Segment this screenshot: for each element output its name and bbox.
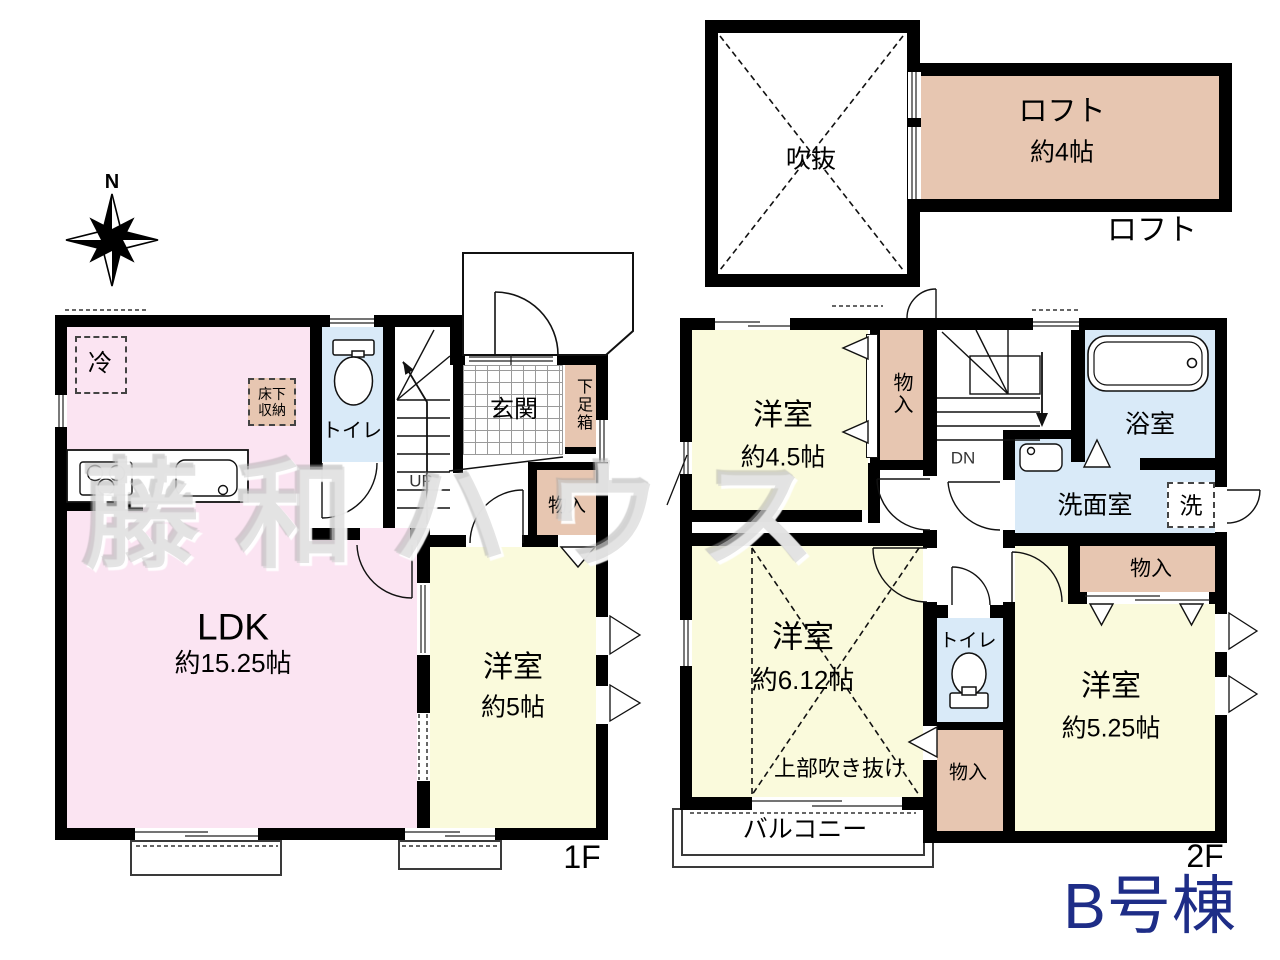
compass-north-label: N bbox=[105, 172, 119, 192]
ldk-label: LDK bbox=[197, 609, 269, 646]
bedroom-1f-fill bbox=[430, 547, 596, 828]
bedroom-2fa-label: 洋室 bbox=[753, 401, 813, 431]
bath-fill bbox=[1083, 330, 1215, 458]
compass-rose bbox=[66, 194, 158, 286]
stairs-down-label: DN bbox=[951, 450, 976, 467]
loft-caption: ロフト bbox=[1107, 216, 1197, 246]
shoe-box-label: 下足箱 bbox=[574, 378, 590, 432]
building-name-label: B号棟 bbox=[1063, 874, 1237, 938]
door-gap-bedroom2fb bbox=[923, 548, 937, 602]
closet-2f-top-doors bbox=[866, 334, 878, 458]
door-gap-washroom bbox=[1003, 480, 1015, 530]
underfloor-label-2: 収納 bbox=[258, 403, 286, 417]
window-bedroom2fc-east-a bbox=[1215, 614, 1227, 652]
window-bedroom2fa-west bbox=[680, 442, 692, 474]
wall bbox=[1209, 592, 1215, 604]
window-bedroom2fb-west bbox=[680, 620, 692, 666]
loft-room-label: ロフト bbox=[1018, 98, 1105, 127]
terrace-step-bedroom bbox=[398, 840, 502, 870]
closet-2f-mid-label: 物入 bbox=[949, 764, 987, 783]
door-swing-washroom bbox=[948, 482, 1000, 530]
window-bedroom1f-east-b bbox=[596, 686, 608, 724]
door-swing-washroom-east bbox=[1227, 490, 1260, 523]
terrace-step-ldk bbox=[130, 840, 282, 876]
void-room-label: 吹抜 bbox=[786, 148, 836, 173]
door-gap-bedroom2fa bbox=[923, 476, 937, 530]
loft-room-box bbox=[908, 63, 1232, 212]
door-gap-bedroom1f bbox=[466, 535, 522, 547]
bedroom-1f-label: 洋室 bbox=[483, 653, 543, 683]
floor1-caption: 1F bbox=[563, 841, 600, 873]
wall bbox=[1015, 533, 1215, 546]
loft-size-label: 約4帖 bbox=[1030, 141, 1094, 166]
kitchen-counter-base bbox=[67, 502, 143, 511]
closet-2f-mid-opening bbox=[923, 726, 937, 760]
door-swing-toilet-2f bbox=[952, 567, 990, 605]
loft-window-upper bbox=[908, 72, 921, 118]
wall bbox=[528, 462, 597, 470]
bedroom-2fa-size-label: 約4.5帖 bbox=[741, 446, 826, 471]
door-gap-toilet2f bbox=[948, 605, 990, 618]
window-entry-east bbox=[596, 420, 608, 462]
slider-ldk-bedroom bbox=[417, 583, 430, 655]
bedroom-2fb-size-label: 約6.12帖 bbox=[752, 667, 855, 693]
wall bbox=[453, 363, 463, 473]
bedroom-2fc-label: 洋室 bbox=[1081, 672, 1141, 702]
loft-window-lower bbox=[908, 127, 921, 199]
wall bbox=[565, 447, 597, 454]
window-ldk-west bbox=[55, 395, 67, 427]
washer-label: 洗 bbox=[1180, 495, 1203, 518]
closet-1f-opening bbox=[558, 535, 596, 547]
toilet-2f-label: トイレ bbox=[939, 632, 996, 651]
wall bbox=[55, 315, 67, 840]
door-swing-stairtop bbox=[907, 289, 936, 318]
window-bedroom2fa-north bbox=[715, 318, 790, 330]
wall bbox=[1080, 592, 1087, 604]
wall bbox=[1140, 458, 1215, 470]
wall bbox=[868, 463, 880, 523]
wall bbox=[923, 831, 1227, 843]
toilet-1f-label: トイレ bbox=[322, 421, 382, 441]
window-toilet-1f bbox=[330, 315, 374, 327]
closet-2f-top-label: 物入 bbox=[891, 372, 911, 416]
closet-2f-right-slider bbox=[1087, 592, 1209, 604]
wall bbox=[55, 315, 460, 327]
void-note-label: 上部吹き抜け bbox=[774, 758, 906, 780]
balcony-slider bbox=[752, 797, 902, 810]
wall bbox=[1071, 330, 1085, 462]
floorplan-page: N 吹抜 ロフト 約4帖 ロフト LDK 約15.25帖 洋室 約5帖 トイレ … bbox=[0, 0, 1280, 960]
closet-1f-label: 物入 bbox=[548, 497, 586, 516]
window-bedroom1f-south bbox=[405, 828, 495, 840]
door-gap-washroom-east bbox=[1215, 487, 1227, 532]
wall bbox=[528, 470, 537, 535]
entrance-label: 玄関 bbox=[490, 398, 538, 422]
stairs-up-label: UP bbox=[409, 473, 433, 490]
closet-2f-right-label: 物入 bbox=[1130, 559, 1172, 580]
bath-label: 浴室 bbox=[1125, 413, 1175, 438]
bedroom-2fb-label: 洋室 bbox=[772, 622, 834, 653]
bedroom-2fc-size-label: 約5.25帖 bbox=[1062, 717, 1161, 742]
underfloor-label-1: 床下 bbox=[258, 387, 286, 401]
entrance-door-gap bbox=[465, 354, 557, 365]
stairs-2f bbox=[937, 330, 1040, 440]
wall bbox=[383, 327, 395, 528]
window-stair-north bbox=[1033, 318, 1079, 330]
wall bbox=[1068, 546, 1080, 604]
door-gap-bedroom2fc bbox=[1003, 548, 1015, 602]
wall bbox=[1215, 318, 1227, 843]
wall bbox=[692, 510, 862, 522]
opening-ldk-bedroom bbox=[417, 713, 430, 781]
wall bbox=[310, 327, 322, 470]
wall bbox=[937, 722, 1003, 730]
washroom-label: 洗面室 bbox=[1057, 494, 1132, 519]
window-bedroom2fc-east-b bbox=[1215, 677, 1227, 715]
fridge-label: 冷 bbox=[88, 352, 112, 376]
balcony-label: バルコニー bbox=[743, 818, 868, 843]
wall bbox=[680, 318, 692, 810]
wall bbox=[310, 528, 360, 540]
window-bedroom1f-east-a bbox=[596, 617, 608, 655]
wall bbox=[692, 533, 925, 546]
wall bbox=[1012, 430, 1074, 439]
floor2-caption: 2F bbox=[1186, 840, 1223, 872]
ldk-size-label: 約15.25帖 bbox=[174, 650, 291, 676]
window-ldk-south bbox=[135, 828, 258, 840]
wall bbox=[410, 528, 430, 540]
bedroom-1f-size-label: 約5帖 bbox=[481, 696, 545, 721]
stairs-2f-down-arrow bbox=[1036, 352, 1048, 427]
